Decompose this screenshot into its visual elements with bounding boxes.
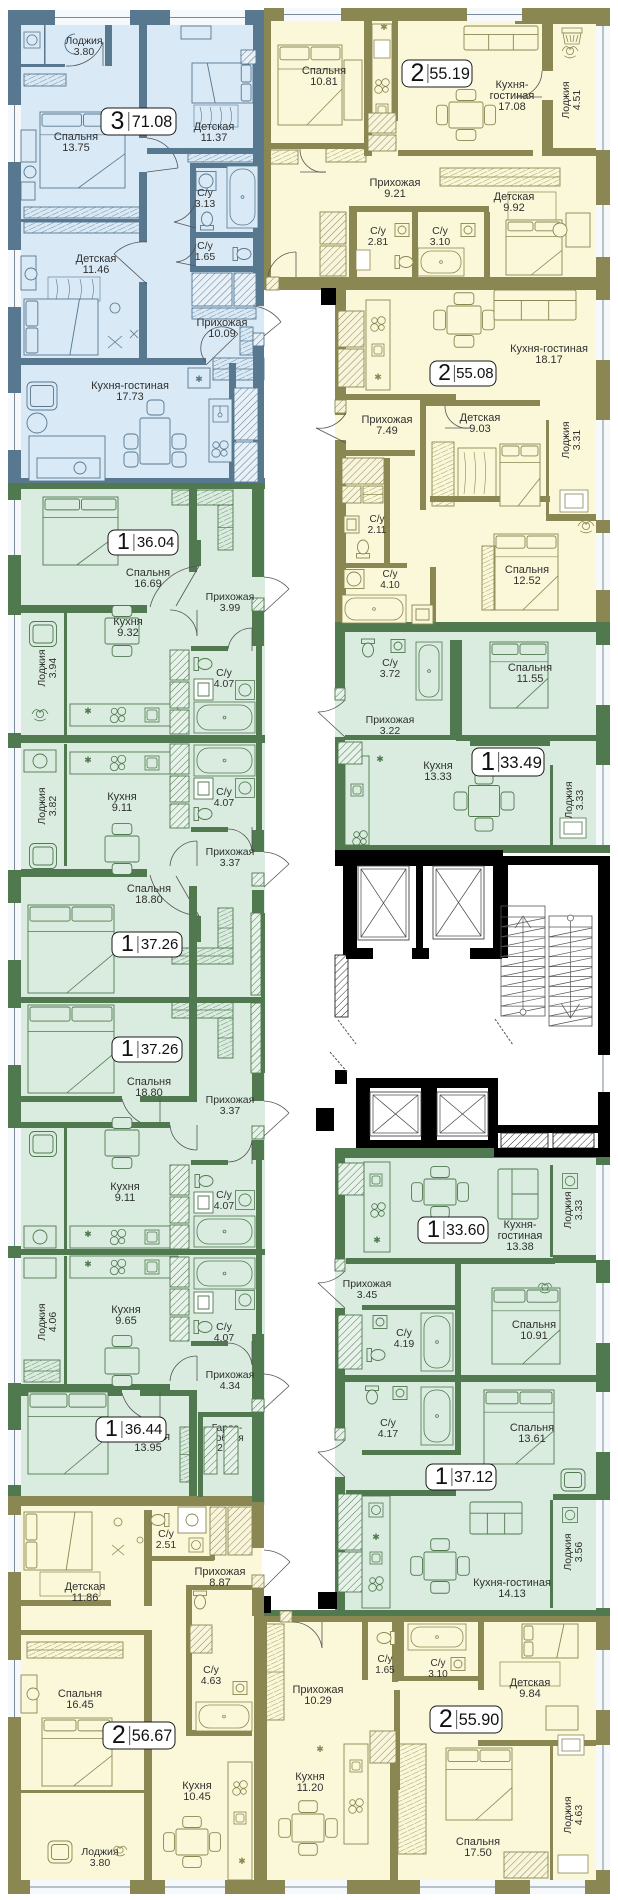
svg-text:10.29: 10.29 [304, 1695, 332, 1707]
svg-text:18.80: 18.80 [135, 894, 163, 906]
svg-text:33.49: 33.49 [500, 753, 542, 772]
svg-text:56.67: 56.67 [132, 1727, 173, 1745]
svg-text:3.99: 3.99 [220, 602, 241, 614]
svg-text:С/у: С/у [431, 1658, 446, 1669]
svg-text:1: 1 [121, 930, 134, 956]
svg-text:33.60: 33.60 [446, 1222, 485, 1239]
svg-text:11.86: 11.86 [72, 1592, 99, 1604]
svg-text:17.73: 17.73 [116, 391, 144, 403]
svg-text:18.17: 18.17 [535, 354, 563, 366]
svg-text:2: 2 [112, 1721, 126, 1749]
svg-text:2: 2 [410, 59, 424, 87]
svg-text:2: 2 [438, 359, 451, 385]
svg-text:1: 1 [121, 1035, 134, 1061]
svg-text:9.11: 9.11 [115, 1192, 136, 1204]
svg-text:3.22: 3.22 [380, 725, 401, 737]
svg-text:16.45: 16.45 [66, 1699, 94, 1711]
svg-text:4.17: 4.17 [378, 1428, 399, 1440]
svg-text:1: 1 [117, 528, 130, 554]
svg-text:4.07: 4.07 [214, 1200, 235, 1212]
svg-text:55.08: 55.08 [456, 365, 494, 382]
svg-text:✱: ✱ [372, 1532, 380, 1542]
svg-text:9.11: 9.11 [112, 802, 133, 814]
svg-text:10.09: 10.09 [208, 328, 236, 340]
svg-text:С/у: С/у [370, 514, 385, 525]
svg-text:13.33: 13.33 [424, 771, 452, 783]
svg-text:10.81: 10.81 [310, 76, 338, 88]
svg-text:2.81: 2.81 [368, 236, 389, 248]
svg-text:3.33: 3.33 [574, 790, 586, 811]
svg-text:37.12: 37.12 [454, 1469, 493, 1486]
svg-text:8.87: 8.87 [209, 1577, 230, 1589]
svg-text:3.56: 3.56 [573, 1542, 585, 1563]
svg-text:1.65: 1.65 [375, 1665, 395, 1676]
svg-text:11.20: 11.20 [297, 1782, 324, 1794]
svg-text:13.95: 13.95 [134, 1442, 162, 1454]
svg-text:36.44: 36.44 [125, 1421, 163, 1438]
svg-text:9.92: 9.92 [503, 202, 524, 214]
svg-text:3.31: 3.31 [571, 430, 583, 451]
svg-text:13.38: 13.38 [506, 1241, 534, 1253]
svg-text:✱: ✱ [84, 1229, 92, 1239]
svg-text:55.19: 55.19 [429, 65, 470, 83]
svg-text:3.82: 3.82 [47, 796, 59, 817]
svg-text:4.51: 4.51 [571, 90, 583, 111]
svg-text:13.75: 13.75 [62, 142, 90, 154]
svg-text:3.37: 3.37 [220, 1105, 241, 1117]
svg-text:36.04: 36.04 [137, 534, 175, 551]
svg-text:4.19: 4.19 [394, 1338, 415, 1350]
svg-text:3: 3 [111, 107, 125, 135]
svg-text:11.55: 11.55 [517, 673, 544, 685]
svg-text:10.45: 10.45 [183, 1791, 211, 1803]
svg-text:3.94: 3.94 [47, 658, 59, 679]
svg-text:2.51: 2.51 [156, 1539, 177, 1551]
svg-text:✱: ✱ [84, 1259, 92, 1269]
svg-text:16.69: 16.69 [134, 578, 162, 590]
svg-text:С/у: С/у [378, 1654, 393, 1665]
svg-text:71.08: 71.08 [132, 113, 173, 131]
svg-text:✱: ✱ [376, 754, 384, 764]
svg-text:4.07: 4.07 [214, 678, 235, 690]
svg-text:3.33: 3.33 [573, 1200, 585, 1221]
svg-text:13.61: 13.61 [518, 1433, 546, 1445]
svg-text:37.26: 37.26 [141, 936, 179, 953]
svg-text:✱: ✱ [316, 1744, 324, 1754]
svg-text:17.50: 17.50 [464, 1847, 492, 1859]
svg-text:2: 2 [439, 1705, 453, 1733]
svg-text:10.91: 10.91 [520, 1330, 548, 1342]
svg-text:3.10: 3.10 [430, 236, 451, 248]
svg-text:14.13: 14.13 [498, 1588, 526, 1600]
svg-text:1: 1 [435, 1463, 448, 1490]
svg-text:3.72: 3.72 [380, 668, 401, 680]
svg-text:3.45: 3.45 [357, 1289, 378, 1301]
svg-text:✱: ✱ [374, 372, 382, 382]
svg-text:9.84: 9.84 [519, 1688, 540, 1700]
svg-text:37.26: 37.26 [141, 1041, 179, 1058]
svg-text:✱: ✱ [84, 706, 92, 716]
svg-text:9.65: 9.65 [115, 1315, 136, 1327]
svg-text:С/у: С/у [383, 569, 398, 580]
svg-text:1: 1 [481, 746, 495, 776]
svg-text:11.37: 11.37 [201, 132, 228, 144]
svg-text:2.11: 2.11 [368, 525, 387, 536]
svg-text:1: 1 [105, 1415, 118, 1441]
svg-text:3.80: 3.80 [90, 1857, 111, 1869]
svg-text:✱: ✱ [195, 374, 203, 384]
svg-text:4.34: 4.34 [220, 1380, 241, 1392]
svg-text:3.10: 3.10 [428, 1669, 448, 1680]
svg-text:9.32: 9.32 [117, 627, 138, 639]
svg-text:12.52: 12.52 [513, 575, 541, 587]
svg-text:4.63: 4.63 [573, 1805, 585, 1826]
svg-text:4.07: 4.07 [214, 797, 235, 809]
svg-text:55.90: 55.90 [459, 1711, 500, 1729]
svg-text:4.06: 4.06 [47, 1312, 59, 1333]
svg-text:4.10: 4.10 [380, 580, 400, 591]
svg-text:9.03: 9.03 [469, 423, 490, 435]
svg-text:3.13: 3.13 [195, 198, 216, 210]
svg-text:9.21: 9.21 [384, 188, 405, 200]
svg-text:3.80: 3.80 [74, 46, 95, 58]
svg-text:✱: ✱ [380, 22, 388, 32]
svg-text:17.08: 17.08 [498, 101, 526, 113]
svg-text:✱: ✱ [238, 1856, 246, 1866]
svg-text:4.63: 4.63 [201, 1675, 222, 1687]
svg-text:7.49: 7.49 [376, 425, 397, 437]
svg-text:3.37: 3.37 [220, 857, 241, 869]
svg-text:4.07: 4.07 [214, 1332, 235, 1344]
svg-text:11.46: 11.46 [83, 264, 110, 276]
svg-text:18.80: 18.80 [135, 1087, 163, 1099]
svg-text:✱: ✱ [373, 1235, 381, 1245]
svg-text:1.65: 1.65 [195, 251, 216, 263]
svg-text:✱: ✱ [84, 755, 92, 765]
svg-text:1: 1 [427, 1216, 440, 1243]
